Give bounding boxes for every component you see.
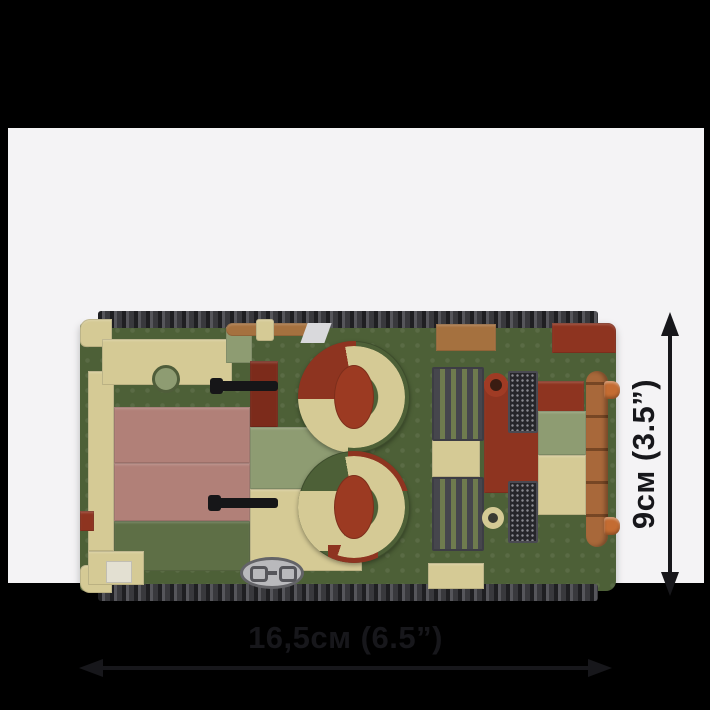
mg-barrel-front [218,498,278,508]
badge-dash [268,571,277,575]
engine-grille-bottom [432,477,484,551]
hatch-knob [152,365,180,393]
turret-left [298,341,410,453]
height-dimension-label: 9см (3.5”) [626,379,662,529]
tank-track-top [98,311,598,328]
fuel-cap-tan [482,507,504,529]
fuel-cap-red [484,373,508,397]
front-camo-tan [538,455,586,515]
beam-clip-top [604,381,620,399]
badge-shackle-right [279,566,297,582]
exhaust-clamp [256,319,274,341]
turret-right [298,451,410,563]
product-panel: 16,5см (6.5”) 9см (3.5”) [8,128,704,583]
deck-brick-tan [432,437,480,477]
turret-hatch-oval [334,365,374,429]
width-dimension-label: 16,5см (6.5”) [80,620,611,656]
vent-mesh-top [508,371,538,433]
vent-mesh-bottom [508,481,538,543]
mg-muzzle-front [208,495,221,511]
tank-model-photo [80,311,616,603]
hull-brick-mauve [114,463,250,521]
mg-barrel-rear [220,381,278,391]
front-camo-sage [538,411,586,455]
hull-detail-red [250,361,278,427]
beam-clip-bottom [604,517,620,535]
width-dimension-arrow-icon [78,655,613,681]
mg-muzzle-rear [210,378,223,394]
oval-badge [240,557,304,589]
hull-brick-red-front [552,323,616,353]
hull-brick-brown [436,324,496,351]
hull-brick-tan [428,563,484,589]
badge-shackle-left [250,566,268,582]
rear-nub [80,511,94,531]
hull-brick-mauve [114,407,250,463]
tank-track-bottom [98,584,598,601]
turret-hatch-oval [334,475,374,539]
image-frame: 16,5см (6.5”) 9см (3.5”) [0,0,710,710]
engine-grille-top [432,367,484,441]
stud-block [106,561,132,583]
